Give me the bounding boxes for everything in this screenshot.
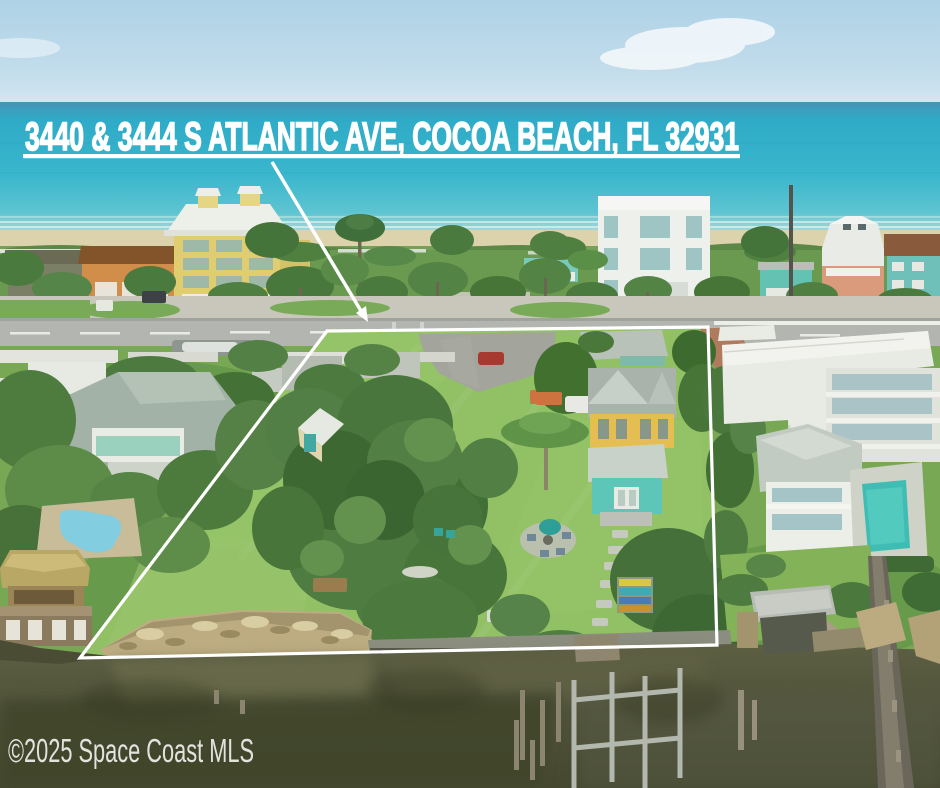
svg-text:3440 & 3444 S ATLANTIC AVE, CO: 3440 & 3444 S ATLANTIC AVE, COCOA BEACH,… <box>25 115 739 159</box>
svg-text:©2025 Space Coast MLS: ©2025 Space Coast MLS <box>8 732 254 769</box>
